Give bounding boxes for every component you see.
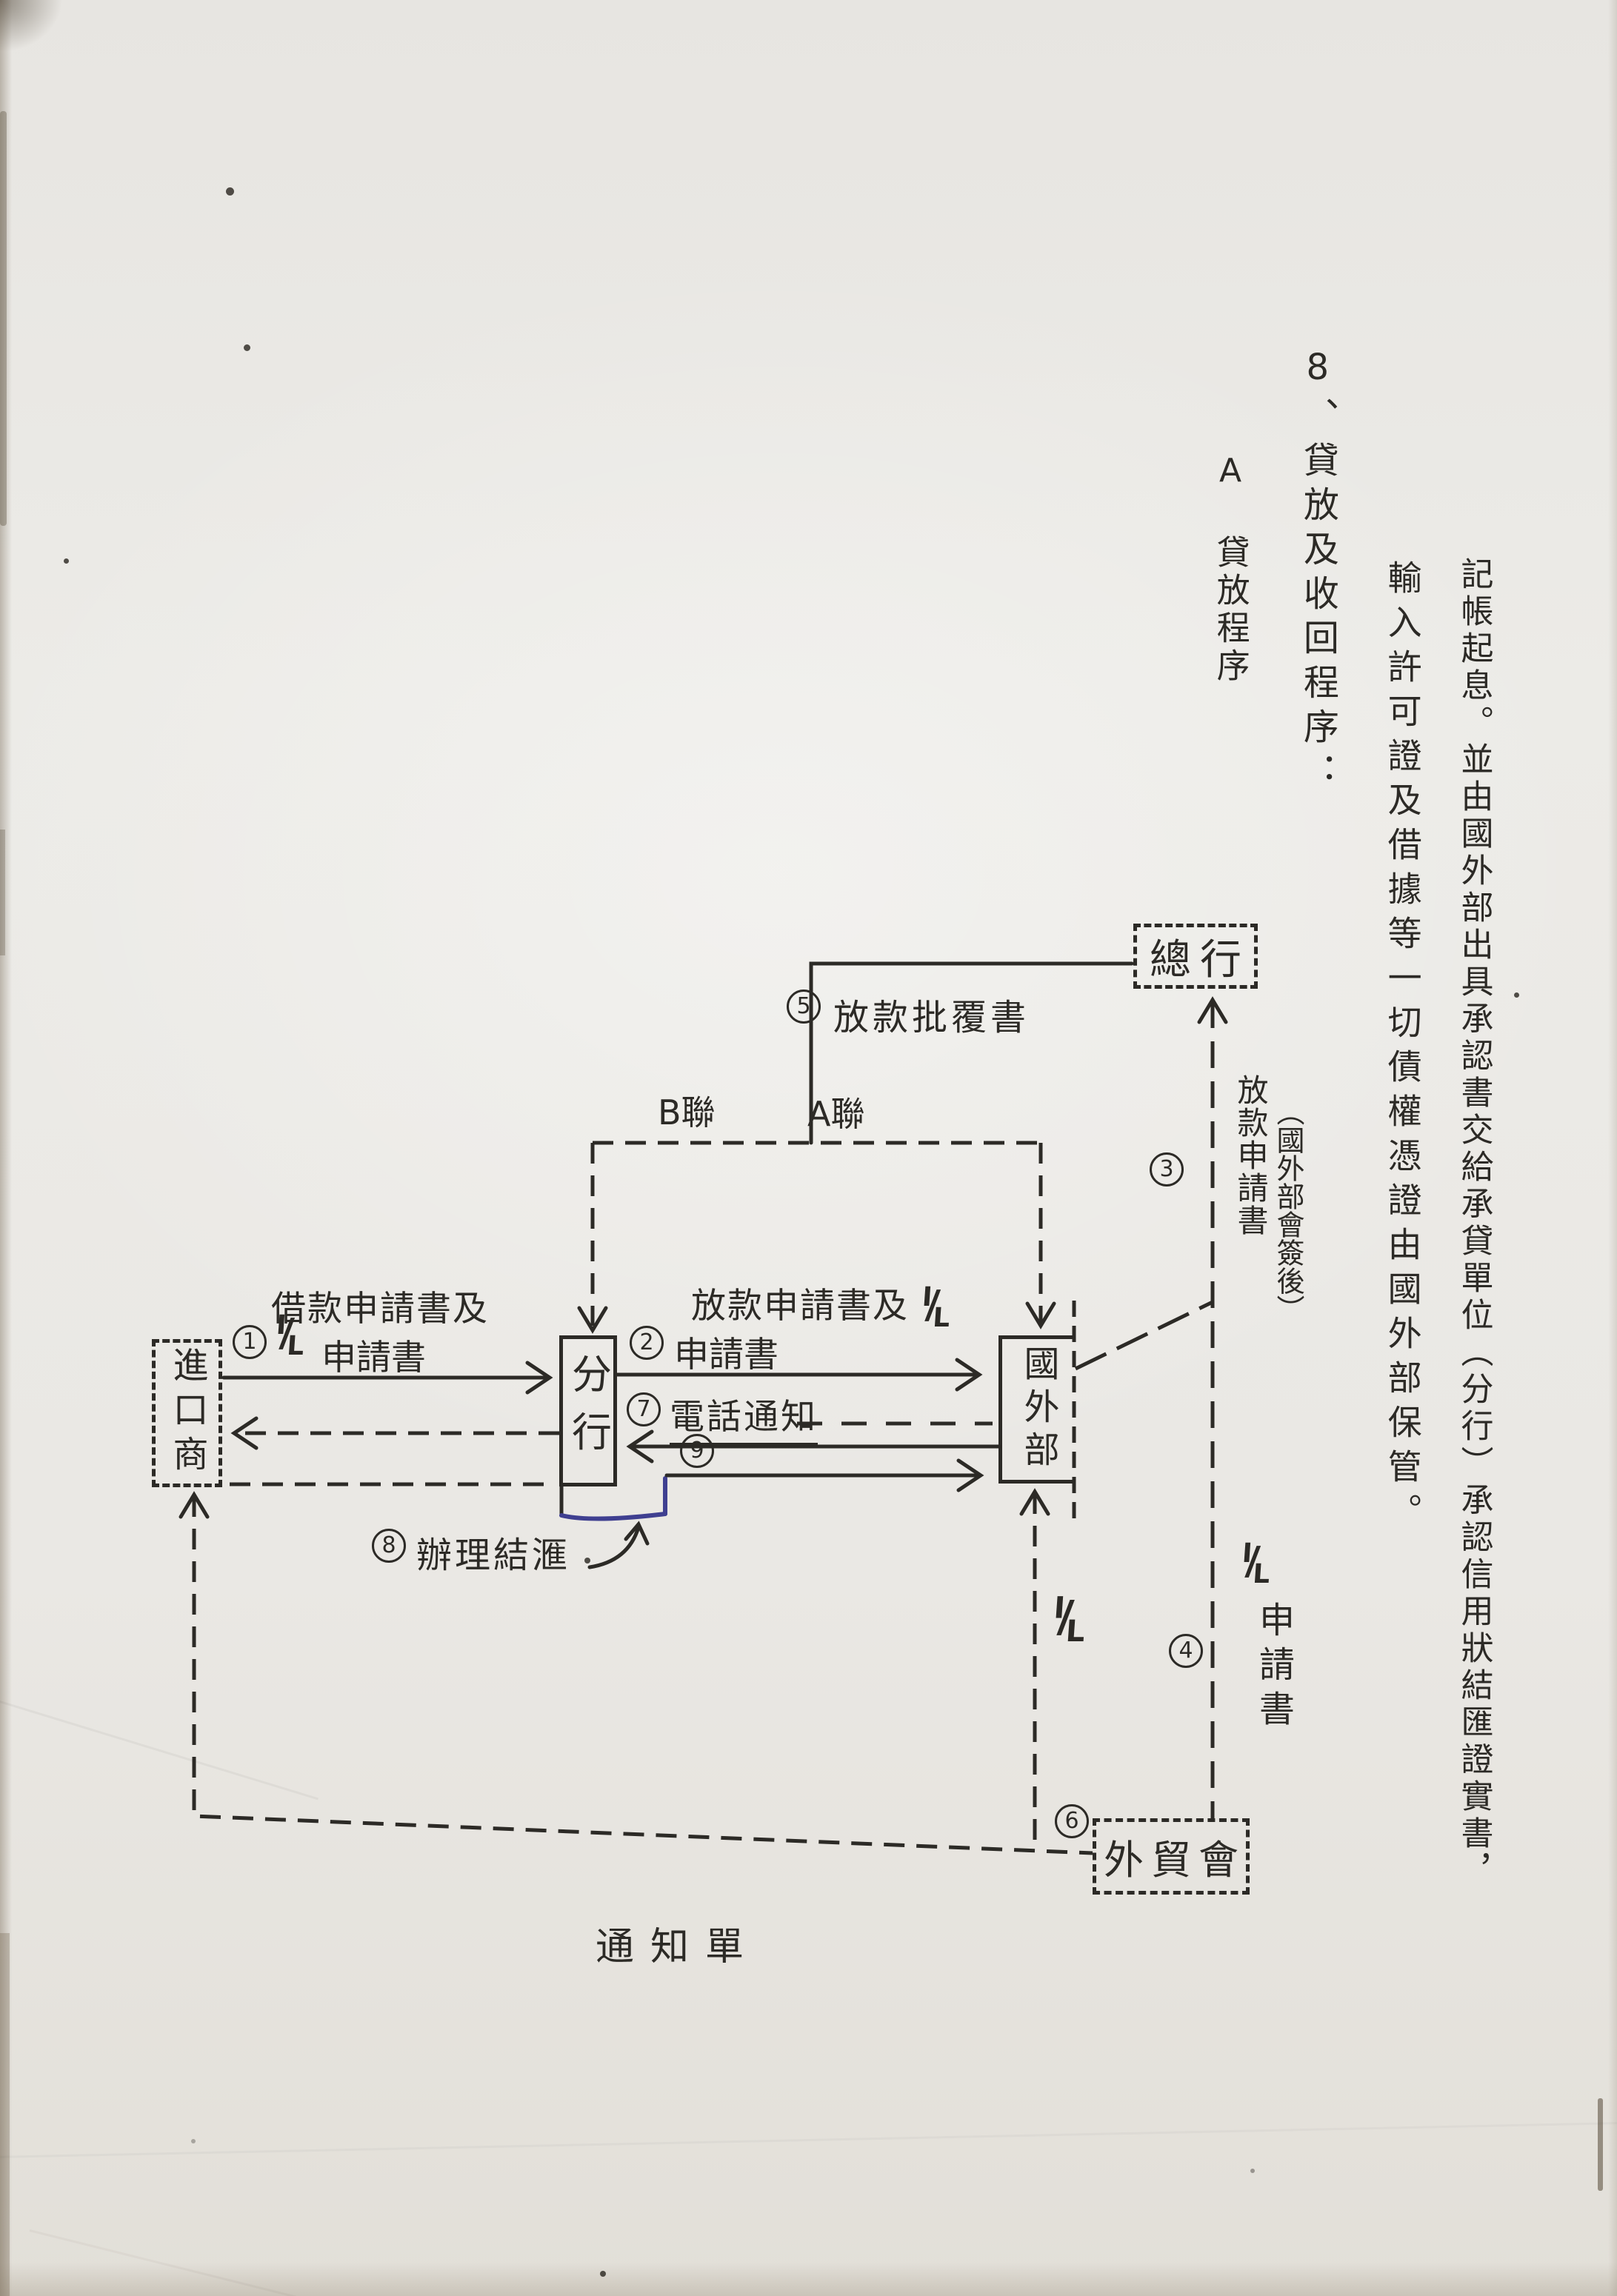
flow-step2-arrow [617,1360,979,1389]
body-text-column-4: 貸放程序 [1212,535,1248,831]
step-8-badge: 8 [372,1529,406,1563]
label-phone-notice: 電話通知 [670,1388,818,1446]
il-symbol: I/L [1051,1594,1087,1647]
node-importer: 進口商 [152,1339,222,1487]
node-branch: 分行 [559,1335,617,1486]
label-countersigned-note: （國外部會簽後） [1268,1098,1309,1323]
flow-step34-line [1074,1000,1226,1820]
flow-lines [0,0,1617,2296]
node-label: 進口商 [161,1346,213,1480]
label-copy-b: B聯 [658,1086,716,1135]
step-3-badge: 3 [1150,1152,1184,1187]
il-symbol: I/L [274,1312,307,1360]
scanned-page: 總行 分行 國外部 進口商 外貿會 1 2 3 4 5 6 7 8 9 放款批覆… [0,0,1617,2296]
step-6-badge: 6 [1055,1804,1089,1838]
step-4-badge: 4 [1169,1634,1203,1668]
step-2-badge: 2 [630,1326,664,1360]
node-head-office: 總行 [1133,924,1258,989]
node-trade-council: 外貿會 [1093,1818,1250,1895]
node-label: 分行 [559,1353,618,1469]
node-foreign-dept: 國外部 [998,1335,1074,1484]
label-loan-approval: 放款批覆書 [833,988,1030,1040]
label-lend-request-line2: 申請書 [674,1326,779,1377]
label-borrow-request-line2: 申請書 [321,1329,426,1380]
body-text-column-2: 輸入許可證及借據等一切債權憑證由國外部保管。 [1384,560,1421,1671]
step-5-badge: 5 [787,990,821,1024]
label-lend-request-line1: 放款申請書及 I/L [691,1277,950,1332]
node-label: 總行 [1141,927,1250,987]
flow-return-arrow [230,1418,559,1484]
node-label: 國外部 [1013,1345,1064,1474]
flow-il-line [1021,1492,1048,1849]
body-text-column-3: 8、貸放及收回程序： [1298,347,1336,1013]
node-label: 外貿會 [1096,1827,1246,1886]
il-symbol: I/L [920,1284,953,1332]
label-copy-a: A聯 [807,1087,864,1136]
label-notice-slip: 通知單 [596,1915,760,1971]
step-7-badge: 7 [627,1392,661,1426]
body-text-column-1: 記帳起息。並由國外部出具承認書交給承貸單位（分行）承認信用狀結匯證實書， [1456,557,1492,2112]
label-settle-exchange: 辦理結滙 [416,1526,570,1578]
section-marker-a: A [1219,452,1241,490]
flow-step8-bracket [561,1461,981,1567]
step-1-badge: 1 [233,1325,267,1359]
label-il-application: 申請書 [1247,1601,1299,1735]
list-number: 8、 [1297,347,1338,441]
flow-notice-loop [181,1495,1093,1853]
il-symbol: I/L [1240,1541,1273,1588]
label-loan-application: 放款申請書 [1228,1074,1273,1237]
